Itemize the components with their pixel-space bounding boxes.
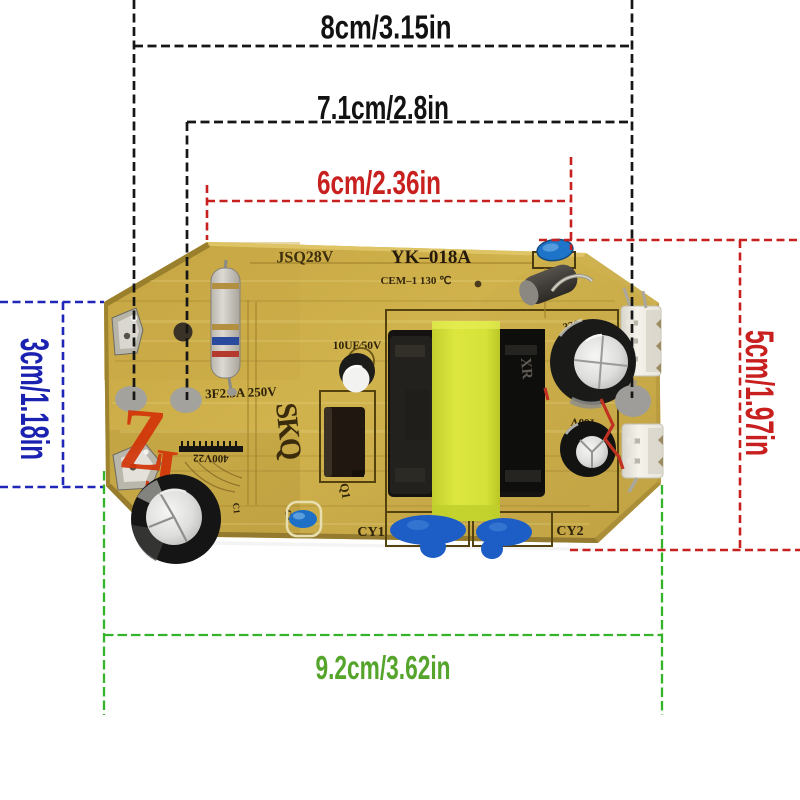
svg-text:8cm/3.15in: 8cm/3.15in xyxy=(321,9,452,46)
svg-text:Q1: Q1 xyxy=(337,482,353,500)
svg-text:CY2: CY2 xyxy=(556,524,583,539)
svg-text:7.1cm/2.8in: 7.1cm/2.8in xyxy=(317,89,449,126)
svg-text:9.2cm/3.62in: 9.2cm/3.62in xyxy=(316,649,451,686)
svg-text:3cm/1.18in: 3cm/1.18in xyxy=(12,338,56,460)
svg-text:XR: XR xyxy=(517,357,535,380)
svg-text:YK–018A: YK–018A xyxy=(391,247,472,268)
svg-text:5cm/1.97in: 5cm/1.97in xyxy=(737,330,781,456)
svg-text:C1: C1 xyxy=(231,502,242,514)
svg-text:CEM–1 130 ℃: CEM–1 130 ℃ xyxy=(380,275,451,287)
svg-text:6cm/2.36in: 6cm/2.36in xyxy=(317,164,441,201)
svg-text:3F2.5A 250V: 3F2.5A 250V xyxy=(205,384,278,402)
svg-text:CY1: CY1 xyxy=(357,525,384,540)
svg-text:10UF∕50V: 10UF∕50V xyxy=(333,340,382,352)
svg-text:JSQ28V: JSQ28V xyxy=(276,248,334,266)
svg-text:SKQ: SKQ xyxy=(269,401,308,461)
